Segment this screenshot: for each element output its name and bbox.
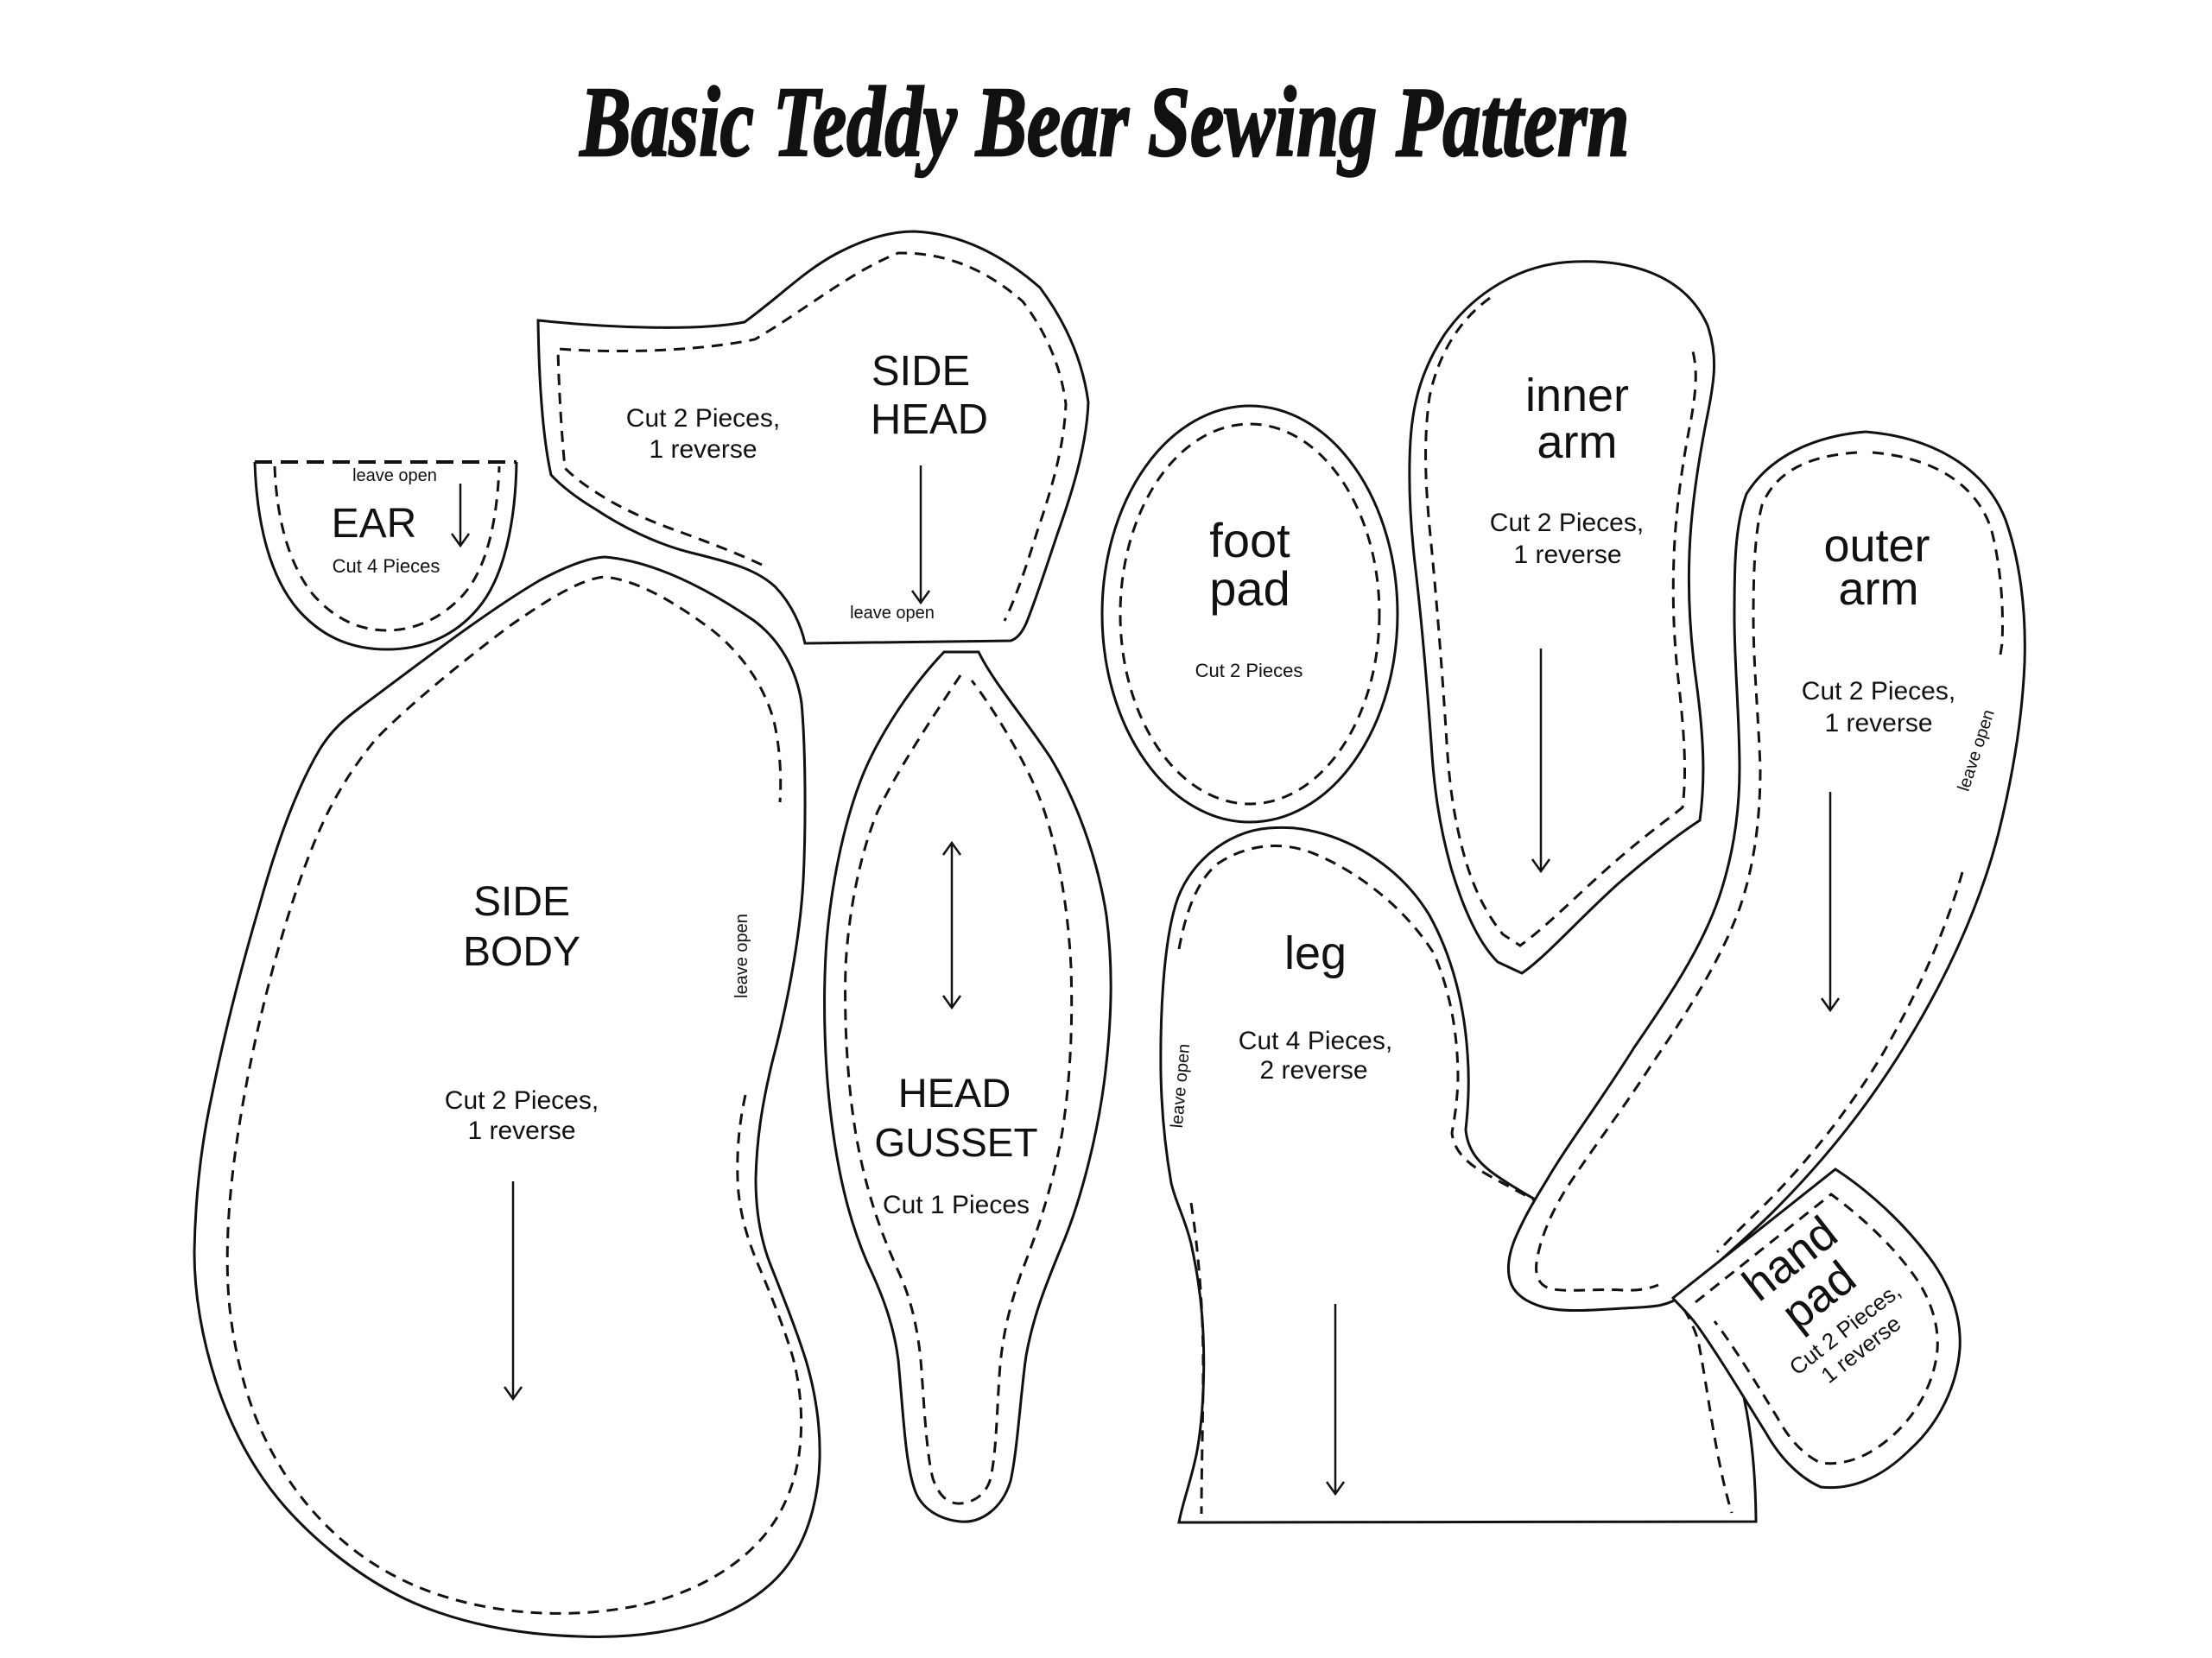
svg-text:HEAD: HEAD bbox=[898, 1070, 1011, 1116]
svg-text:Cut 1 Pieces: Cut 1 Pieces bbox=[883, 1191, 1030, 1219]
svg-text:Cut 2 Pieces,: Cut 2 Pieces, bbox=[626, 404, 780, 433]
svg-text:1 reverse: 1 reverse bbox=[1824, 709, 1932, 737]
svg-text:SIDE: SIDE bbox=[871, 348, 970, 395]
svg-text:leave open: leave open bbox=[352, 466, 437, 485]
svg-text:BODY: BODY bbox=[463, 929, 580, 975]
svg-text:arm: arm bbox=[1839, 563, 1919, 615]
svg-text:1 reverse: 1 reverse bbox=[1513, 541, 1621, 569]
svg-text:leave open: leave open bbox=[850, 604, 935, 623]
svg-text:1 reverse: 1 reverse bbox=[649, 435, 757, 464]
svg-text:arm: arm bbox=[1537, 416, 1618, 468]
svg-text:SIDE: SIDE bbox=[473, 879, 570, 925]
svg-text:EAR: EAR bbox=[332, 501, 417, 547]
svg-text:Basic Teddy Bear Sewing Patter: Basic Teddy Bear Sewing Pattern bbox=[579, 67, 1630, 177]
svg-text:Cut 4 Pieces,: Cut 4 Pieces, bbox=[1239, 1027, 1392, 1055]
svg-text:Cut 4 Pieces: Cut 4 Pieces bbox=[333, 555, 440, 577]
svg-text:leave open: leave open bbox=[732, 914, 751, 998]
svg-text:GUSSET: GUSSET bbox=[874, 1120, 1037, 1165]
svg-text:pad: pad bbox=[1209, 561, 1290, 616]
svg-text:Cut 2 Pieces: Cut 2 Pieces bbox=[1195, 660, 1303, 681]
svg-text:inner: inner bbox=[1525, 370, 1629, 421]
svg-text:foot: foot bbox=[1209, 513, 1290, 567]
svg-text:HEAD: HEAD bbox=[871, 396, 988, 443]
svg-text:2 reverse: 2 reverse bbox=[1259, 1056, 1367, 1085]
svg-text:1 reverse: 1 reverse bbox=[467, 1117, 575, 1145]
svg-text:leg: leg bbox=[1284, 927, 1347, 979]
svg-text:Cut 2 Pieces,: Cut 2 Pieces, bbox=[1490, 509, 1644, 537]
svg-text:Cut 2 Pieces,: Cut 2 Pieces, bbox=[445, 1086, 599, 1115]
svg-text:Cut 2 Pieces,: Cut 2 Pieces, bbox=[1802, 677, 1955, 706]
